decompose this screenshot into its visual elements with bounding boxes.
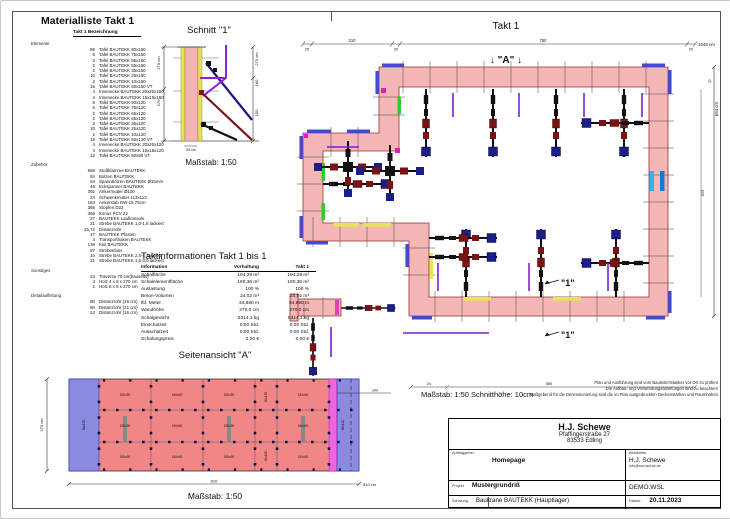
elevation-drawing: Seitenansicht "A" — [29, 339, 397, 511]
bearbeiter-value: H.J. Schewe — [629, 457, 717, 464]
takt-info-row: Schalelementfläche 180,36 m² 180,36 m² — [141, 279, 316, 286]
svg-text:25: 25 — [305, 48, 309, 52]
svg-text:270 cm: 270 cm — [39, 418, 44, 432]
cell-bearbeiter: Bearbeiter H.J. Schewe info@euroschal.de — [626, 450, 720, 480]
title-block-header: H.J. Schewe Pfaffingerstraße 27 83533 Ed… — [449, 419, 720, 450]
svg-text:20: 20 — [394, 48, 398, 52]
fine-print: Plan und Ausführung sind vom Bauleiter/S… — [468, 380, 718, 398]
svg-text:270 cm: 270 cm — [156, 56, 161, 70]
takt-info-row: Schalfläche 194,29 m² 194,29 m² — [141, 272, 316, 279]
cell-file: DEMO.WSL — [626, 481, 720, 495]
svg-text:150x90: 150x90 — [120, 393, 131, 397]
svg-text:150x90: 150x90 — [298, 455, 309, 459]
takt-info-header: Information Vorhaltung Takt 1 — [141, 265, 316, 272]
company-name: H.J. Schewe — [449, 419, 720, 432]
takt-info-table: Taktinformationen Takt 1 bis 1 Informati… — [141, 251, 316, 343]
svg-text:210: 210 — [349, 38, 357, 43]
plan-walls — [303, 67, 668, 316]
svg-text:60x120: 60x120 — [341, 420, 345, 431]
svg-text:150x90: 150x90 — [298, 424, 309, 428]
svg-text:150x90: 150x90 — [172, 424, 183, 428]
takt-info-row: Ausschalzeit 0:00 Std. 0:00 Std. — [141, 329, 316, 336]
svg-text:150x90: 150x90 — [120, 424, 131, 428]
svg-text:90x150: 90x150 — [264, 451, 268, 462]
cell-auftraggeber: Auftraggeber Homepage — [449, 450, 626, 480]
schnitt-drawing: Schnitt "1" 270 cm 270 270 cm 180 150 — [146, 15, 274, 183]
datum-value: 20.11.2023 — [649, 497, 681, 504]
svg-text:150x90: 150x90 — [298, 393, 309, 397]
svg-text:270 cm: 270 cm — [254, 52, 259, 66]
takt-info-row: Wandhöhe 270,0 cm 270,0 cm — [141, 307, 316, 314]
svg-text:20: 20 — [689, 48, 693, 52]
elevation-title: Seitenansicht "A" — [179, 350, 252, 361]
cell-datum: Datum: 20.11.2023 — [626, 496, 720, 509]
svg-text:750: 750 — [540, 38, 548, 43]
takt-info-row: Einschalzeit 0:00 Std. 0:00 Std. — [141, 322, 316, 329]
svg-text:200: 200 — [372, 389, 378, 393]
schnitt-scale: Maßstab: 1:50 — [185, 158, 237, 167]
schalung-value: Baukrane BAUTEKK (Hauptlager) — [476, 497, 569, 504]
material-list-subtitle: Takt 1 Bezeichnung — [73, 30, 141, 37]
plan-blue-rails — [301, 65, 670, 318]
svg-text:629: 629 — [700, 189, 705, 196]
cell-projekt: Projekt Mustergrundriß — [449, 481, 626, 495]
svg-text:90x150: 90x150 — [264, 392, 268, 403]
plan-cyan-panel — [650, 171, 655, 191]
projekt-value: Mustergrundriß — [472, 482, 520, 489]
schnitt-dim-left — [161, 45, 179, 143]
svg-text:150x90: 150x90 — [224, 455, 235, 459]
schnitt-wall — [169, 47, 259, 141]
svg-text:270: 270 — [156, 99, 161, 106]
schnitt-title: Schnitt "1" — [187, 25, 231, 36]
svg-text:24: 24 — [427, 382, 431, 386]
title-block: H.J. Schewe Pfaffingerstraße 27 83533 Ed… — [448, 418, 721, 508]
bearbeiter-email: info@euroschal.de — [629, 464, 717, 468]
auftraggeber-value: Homepage — [492, 457, 622, 464]
elevation-panels — [69, 379, 359, 471]
takt-info-row: Schalgewicht 5314,1 kg 5314,1 kg — [141, 315, 316, 322]
svg-text:664 cm: 664 cm — [714, 101, 719, 116]
takt-info-rows: Schalfläche 194,29 m² 194,29 m² Schalele… — [141, 272, 316, 343]
svg-text:"1": "1" — [561, 278, 575, 288]
svg-text:150x90: 150x90 — [224, 393, 235, 397]
takt-info-row: Auslastung 100 % 100 % — [141, 286, 316, 293]
company-city: 83533 Edling — [449, 438, 720, 444]
takt-info-row: Beton-Volumen 24,02 m³ 24,02 m³ — [141, 293, 316, 300]
plan-dim-top — [301, 42, 697, 47]
svg-text:1045 cm: 1045 cm — [698, 42, 715, 47]
elevation-scale: Maßstab: 1:50 — [188, 491, 243, 501]
svg-text:60x120: 60x120 — [82, 420, 86, 431]
svg-text:180: 180 — [254, 79, 259, 86]
svg-text:150x90: 150x90 — [172, 455, 183, 459]
svg-text:30: 30 — [708, 79, 712, 83]
drawing-sheet: Materialliste Takt 1 Takt 1 Bezeichnung … — [0, 0, 730, 519]
svg-text:810 cm: 810 cm — [363, 482, 377, 487]
svg-text:150x90: 150x90 — [224, 424, 235, 428]
schnitt-braces — [199, 45, 252, 140]
svg-text:150: 150 — [254, 109, 259, 116]
takt-info-title: Taktinformationen Takt 1 bis 1 — [141, 251, 316, 262]
svg-text:150x90: 150x90 — [120, 455, 131, 459]
schnitt-dim-bottom: 25 cm — [186, 148, 196, 152]
svg-text:"1": "1" — [561, 330, 575, 340]
file-value: DEMO.WSL — [629, 484, 717, 491]
takt-info-row: lfd. Meter 34,880 m 34,880 m — [141, 300, 316, 307]
plan-title: Takt 1 — [493, 21, 520, 32]
svg-text:810: 810 — [211, 479, 218, 484]
cell-schalung: Schalung Baukrane BAUTEKK (Hauptlager) — [449, 496, 626, 509]
svg-text:150x90: 150x90 — [172, 393, 183, 397]
plan-section-a-marker: ↓ "A" ↓ — [490, 55, 522, 66]
